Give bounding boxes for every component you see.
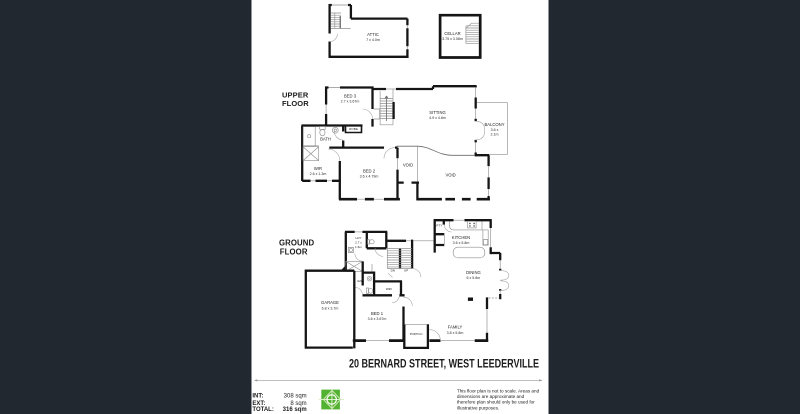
svg-text:GROUND: GROUND [279,238,315,247]
svg-text:BATH: BATH [320,137,331,142]
svg-text:3.6 x: 3.6 x [491,128,499,132]
svg-text:3.6 x 3.67m: 3.6 x 3.67m [368,317,387,321]
svg-text:DINING: DINING [466,270,481,275]
svg-text:2.1m: 2.1m [491,133,499,137]
svg-text:VOID: VOID [445,172,455,177]
svg-text:SITTING: SITTING [429,110,446,115]
svg-text:FLOOR: FLOOR [282,99,309,108]
svg-text:dimensions are approximate and: dimensions are approximate and [457,394,525,399]
svg-text:BED 2: BED 2 [363,168,376,173]
svg-text:WIR: WIR [386,287,393,291]
svg-text:3.8 x 5.8m: 3.8 x 5.8m [447,331,464,335]
svg-text:BED 1: BED 1 [371,311,384,316]
svg-text:GARAGE: GARAGE [321,300,339,305]
svg-text:ATTIC: ATTIC [367,32,379,37]
svg-text:8 sqm: 8 sqm [290,401,306,407]
svg-text:FLOOR: FLOOR [280,247,308,256]
svg-text:2.7 x: 2.7 x [355,241,362,245]
svg-text:ENS: ENS [358,279,364,283]
svg-text:2.6 x 1.3m: 2.6 x 1.3m [310,172,327,176]
svg-text:UP: UP [404,269,408,273]
svg-text:PORTICO: PORTICO [410,332,424,336]
svg-text:3.6 x 5.8m: 3.6 x 5.8m [453,241,470,245]
svg-text:3.6 x 4.79m: 3.6 x 4.79m [360,175,379,179]
svg-text:KITCHEN: KITCHEN [452,235,470,240]
svg-text:This floor plan is not to scal: This floor plan is not to scale. Areas a… [457,389,540,394]
svg-text:3.75 x 3.08m: 3.75 x 3.08m [442,37,463,41]
svg-text:20 BERNARD STREET, WEST LEEDER: 20 BERNARD STREET, WEST LEEDERVILLE [349,357,539,371]
svg-text:INT:: INT: [252,394,263,400]
svg-text:VOID: VOID [403,162,413,167]
svg-text:DN: DN [391,269,395,273]
svg-text:CELLAR: CELLAR [444,31,460,36]
svg-text:TOTAL:: TOTAL: [252,407,273,413]
svg-text:PTY: PTY [436,224,442,228]
svg-text:WIR: WIR [314,166,322,171]
svg-text:therefore plan should only be: therefore plan should only be used for [457,400,535,405]
svg-text:LDY: LDY [355,236,361,240]
svg-text:BED 3: BED 3 [344,94,357,99]
svg-text:308 sqm: 308 sqm [284,394,307,400]
svg-text:4.9 x 4.8m: 4.9 x 4.8m [429,116,446,120]
svg-text:6 x 5.8m: 6 x 5.8m [467,276,481,280]
svg-text:illustrative purposes.: illustrative purposes. [457,405,499,410]
svg-text:6.8 x 3.7m: 6.8 x 3.7m [322,306,339,310]
svg-text:FAMILY: FAMILY [448,325,463,330]
svg-text:1.6m: 1.6m [355,245,362,249]
svg-text:7 x 4.0m: 7 x 4.0m [366,38,380,42]
svg-text:BALCONY: BALCONY [484,122,504,127]
svg-text:2.7 x 3.67m: 2.7 x 3.67m [341,100,360,104]
svg-text:ROBE: ROBE [349,127,358,131]
svg-text:EXT:: EXT: [252,401,265,407]
svg-text:316 sqm: 316 sqm [283,407,307,413]
